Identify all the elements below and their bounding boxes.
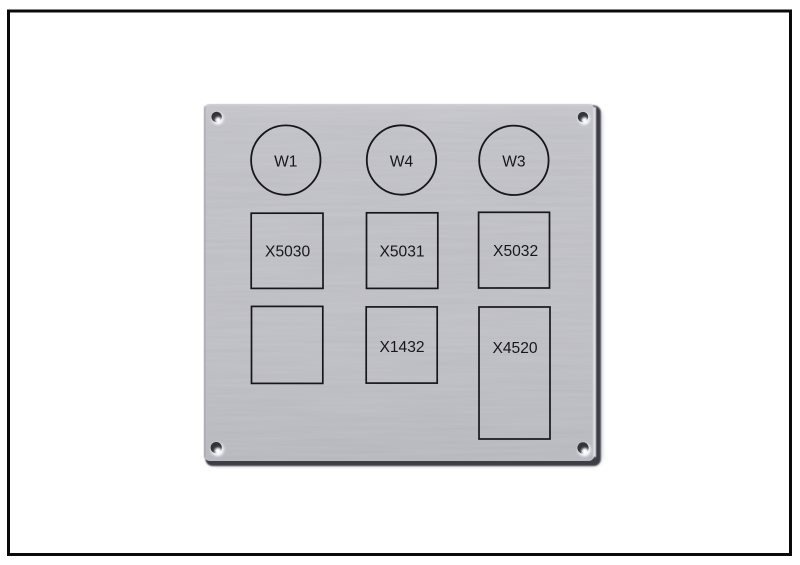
svg-text:X5030: X5030 <box>265 243 310 260</box>
svg-text:X4520: X4520 <box>492 340 537 357</box>
svg-text:W1: W1 <box>274 154 297 171</box>
svg-text:W3: W3 <box>502 154 525 171</box>
svg-text:X5032: X5032 <box>493 243 538 260</box>
svg-text:W4: W4 <box>390 154 414 171</box>
svg-text:X1432: X1432 <box>379 339 424 356</box>
svg-text:X5031: X5031 <box>379 243 424 260</box>
